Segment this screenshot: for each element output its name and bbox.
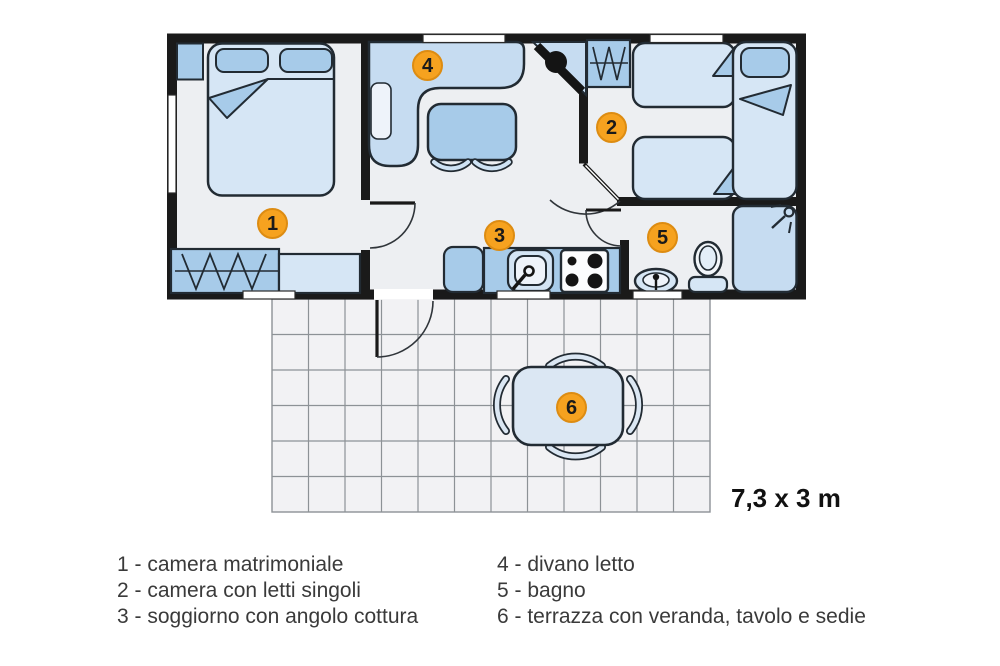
sofa-cushion bbox=[371, 83, 391, 139]
dresser bbox=[279, 254, 360, 293]
room-badge-5-number: 5 bbox=[657, 228, 668, 248]
legend-item-5: 5 - bagno bbox=[497, 578, 866, 604]
shower bbox=[733, 206, 797, 292]
burner-icon bbox=[588, 274, 603, 289]
burner-icon bbox=[568, 257, 577, 266]
floor-plan-page: 1 2 3 4 5 6 7,3 x 3 m 1 - camera matrimo… bbox=[0, 0, 1000, 666]
window-bottom-bedroom1 bbox=[243, 291, 295, 299]
legend-item-1: 1 - camera matrimoniale bbox=[117, 552, 418, 578]
living-table bbox=[428, 104, 516, 160]
bedside-cabinet bbox=[177, 44, 203, 80]
window-top-bedroom2 bbox=[650, 35, 723, 43]
window-bottom-kitchen bbox=[497, 291, 550, 299]
burner-icon bbox=[588, 254, 603, 269]
room-badge-5: 5 bbox=[647, 222, 678, 253]
stove bbox=[561, 250, 608, 292]
pillow bbox=[280, 49, 332, 72]
room-badge-4: 4 bbox=[412, 50, 443, 81]
room-badge-3: 3 bbox=[484, 220, 515, 251]
window-bottom-bathroom bbox=[633, 291, 682, 299]
room-badge-6: 6 bbox=[556, 392, 587, 423]
room-badge-1-number: 1 bbox=[267, 214, 278, 234]
legend-item-4: 4 - divano letto bbox=[497, 552, 866, 578]
legend-column-right: 4 - divano letto 5 - bagno 6 - terrazza … bbox=[497, 552, 866, 630]
room-badge-2-number: 2 bbox=[606, 118, 617, 138]
room-badge-3-number: 3 bbox=[494, 226, 505, 246]
toilet-base bbox=[689, 277, 727, 292]
entrance-opening bbox=[374, 289, 433, 300]
wall-bath-left bbox=[620, 240, 629, 299]
window-top-living bbox=[423, 35, 505, 43]
toilet-bowl-inner bbox=[700, 246, 717, 270]
terrace bbox=[272, 299, 710, 512]
legend-column-left: 1 - camera matrimoniale 2 - camera con l… bbox=[117, 552, 418, 630]
legend-item-6: 6 - terrazza con veranda, tavolo e sedie bbox=[497, 604, 866, 630]
floor-plan-drawing bbox=[0, 0, 1000, 545]
dimensions-label: 7,3 x 3 m bbox=[731, 483, 841, 514]
window-left-bedroom1 bbox=[168, 95, 176, 193]
pillow bbox=[741, 48, 789, 77]
legend-item-2: 2 - camera con letti singoli bbox=[117, 578, 418, 604]
room-badge-2: 2 bbox=[596, 112, 627, 143]
room-badge-1: 1 bbox=[257, 208, 288, 239]
room-badge-6-number: 6 bbox=[566, 398, 577, 418]
burner-icon bbox=[566, 274, 579, 287]
room-badge-4-number: 4 bbox=[422, 56, 433, 76]
tv-screen-icon bbox=[545, 51, 567, 73]
pillow bbox=[216, 49, 268, 72]
legend-item-3: 3 - soggiorno con angolo cottura bbox=[117, 604, 418, 630]
wall-bedroom1-living-lower bbox=[361, 250, 370, 299]
kitchen-cabinet bbox=[444, 247, 483, 292]
kitchen-corner bbox=[444, 247, 620, 293]
